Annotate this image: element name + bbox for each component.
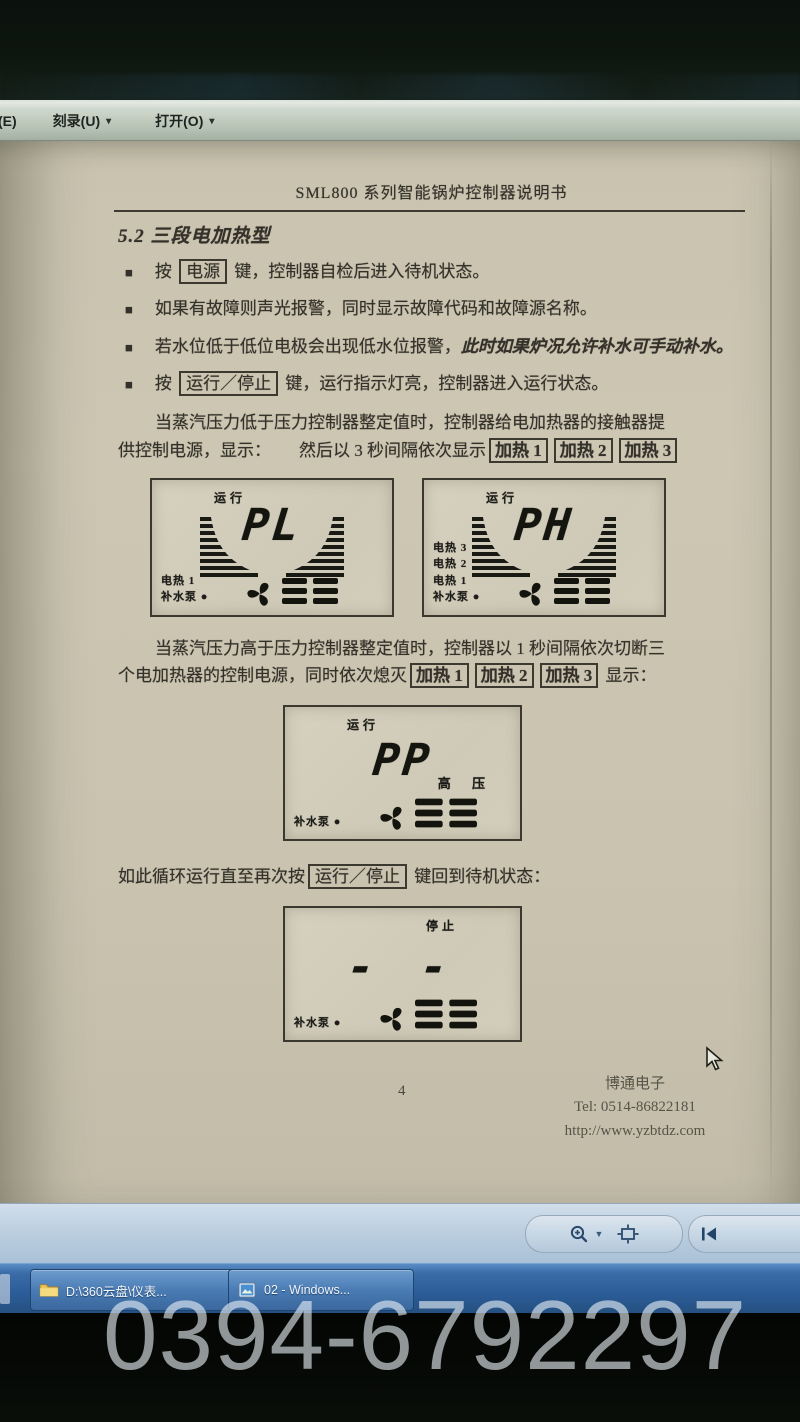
run-stop-key-box: 运行／停止	[179, 371, 278, 396]
viewer-control-bar: ▼	[0, 1203, 800, 1264]
paragraph-line: 当蒸汽压力低于压力控制器整定值时，控制器给电加热器的接触器提	[118, 409, 745, 436]
paragraph-line: 个电加热器的控制电源，同时依次熄灭加热 1加热 2加热 3 显示：	[118, 662, 745, 689]
bullet-square-icon: ■	[125, 302, 133, 317]
paragraph-text: 个电加热器的控制电源，同时依次熄灭	[118, 666, 407, 685]
heater-bars-icon	[415, 798, 477, 828]
paragraph-cycle: 如此循环运行直至再次按运行／停止 键回到待机状态：	[118, 863, 745, 890]
doc-header-title: SML800 系列智能锅炉控制器说明书	[118, 179, 745, 203]
heat3-indicator-box: 加热 3	[540, 663, 599, 688]
heater-bars-icon	[282, 578, 338, 604]
indicator-label: 电热 3	[433, 540, 480, 557]
lcd-panel-center: 停止 - - 补水泵 ●	[283, 906, 745, 1042]
chevron-down-icon[interactable]: ▼	[595, 1229, 604, 1239]
paragraph-line: 供控制电源，显示：然后以 3 秒间隔依次显示加热 1加热 2加热 3	[118, 437, 745, 464]
header-rule	[114, 210, 745, 212]
indicator-label: 电热 2	[433, 556, 480, 573]
lcd-display-pp: 运行 PP 高 压 补水泵 ●	[283, 705, 522, 841]
bullet-text-emphasis: 此时如果炉况允许补水可手动补水。	[461, 337, 733, 356]
fan-icon	[246, 580, 274, 608]
fit-to-window-icon[interactable]	[617, 1224, 639, 1244]
indicator-label: 补水泵 ●	[294, 814, 341, 831]
zoom-controls-group: ▼	[525, 1215, 683, 1253]
lcd-display-pl: 运行 PL 电热 1 补水泵 ●	[150, 478, 394, 617]
lcd-indicator-labels: 电热 1 补水泵 ●	[161, 573, 208, 606]
bullet-square-icon: ■	[125, 265, 133, 280]
lcd-panel-row: 运行 PL 电热 1 补水泵 ●	[150, 478, 745, 617]
indicator-label: 补水泵 ●	[433, 589, 480, 606]
water-level-bars-left-icon	[472, 516, 536, 578]
fan-icon	[379, 1005, 407, 1033]
heater-bars-icon	[415, 999, 477, 1029]
indicator-label: 补水泵 ●	[161, 589, 208, 606]
paragraph-text: 如此循环运行直至再次按	[118, 867, 305, 886]
fan-icon	[379, 804, 407, 832]
paragraph-text: 然后以 3 秒间隔依次显示	[299, 441, 486, 460]
heat1-indicator-box: 加热 1	[410, 663, 469, 688]
high-pressure-label: 高 压	[438, 773, 494, 792]
lcd-indicator-labels: 补水泵 ●	[294, 1015, 341, 1032]
menu-item-label: 刻录(U)	[53, 111, 100, 131]
section-heading: 5.2 三段电加热型	[118, 221, 745, 248]
company-name: 博通电子	[520, 1073, 750, 1096]
page-number: 4	[398, 1083, 406, 1100]
watermark-text: 0394-6792297	[103, 1279, 747, 1392]
viewer-menu-bar: (E) 刻录(U) ▾ 打开(O) ▾	[0, 100, 800, 141]
zoom-magnifier-icon[interactable]	[569, 1224, 589, 1244]
bullet-square-icon: ■	[125, 340, 133, 355]
bullet-run-stop-key: ■按 运行／停止 键，运行指示灯亮，控制器进入运行状态。	[118, 371, 745, 397]
bullet-text: 键，运行指示灯亮，控制器进入运行状态。	[281, 374, 608, 393]
bullet-low-water: ■若水位低于低位电极会出现低水位报警，此时如果炉况允许补水可手动补水。	[118, 334, 745, 360]
heat3-indicator-box: 加热 3	[619, 438, 678, 463]
water-level-bars-right-icon	[280, 516, 344, 578]
mouse-cursor-icon	[704, 1046, 726, 1074]
lcd-panel-center: 运行 PP 高 压 补水泵 ●	[283, 705, 745, 841]
indicator-label: 电热 1	[433, 573, 480, 590]
menu-item-label: (E)	[0, 113, 17, 129]
heater-bars-icon	[554, 578, 610, 604]
paragraph-text: 供控制电源，显示：	[118, 441, 271, 460]
paragraph-high-pressure: 当蒸汽压力高于压力控制器整定值时，控制器以 1 秒间隔依次切断三 个电加热器的控…	[118, 635, 745, 689]
bullet-text: 按	[155, 374, 176, 393]
bullet-square-icon: ■	[125, 377, 133, 392]
monitor-bezel-top	[0, 0, 800, 100]
lcd-status-label: 停止	[426, 917, 458, 934]
run-stop-key-box: 运行／停止	[308, 864, 407, 889]
document-page: SML800 系列智能锅炉控制器说明书 5.2 三段电加热型 ■按 电源 键，控…	[0, 141, 800, 1203]
lcd-value: PL	[149, 500, 394, 551]
lcd-indicator-labels: 电热 3 电热 2 电热 1 补水泵 ●	[433, 540, 480, 606]
menu-item-open[interactable]: 打开(O) ▾	[147, 108, 222, 134]
heat2-indicator-box: 加热 2	[475, 663, 534, 688]
chevron-down-icon: ▾	[209, 116, 214, 127]
paragraph-text: 显示：	[601, 666, 656, 685]
menu-item-email-partial[interactable]: (E)	[0, 110, 25, 132]
paragraph-low-pressure: 当蒸汽压力低于压力控制器整定值时，控制器给电加热器的接触器提 供控制电源，显示：…	[118, 409, 745, 463]
chevron-down-icon: ▾	[106, 116, 111, 127]
folder-icon	[39, 1282, 59, 1298]
heat1-indicator-box: 加热 1	[489, 438, 548, 463]
bullet-text: 若水位低于低位电极会出现低水位报警，	[155, 337, 461, 356]
bullet-text: 按	[155, 262, 176, 281]
company-tel: Tel: 0514-86822181	[520, 1096, 750, 1119]
lcd-indicator-labels: 补水泵 ●	[294, 814, 341, 831]
indicator-label: 补水泵 ●	[294, 1015, 341, 1032]
fan-icon	[518, 580, 546, 608]
menu-item-burn[interactable]: 刻录(U) ▾	[45, 108, 119, 134]
paragraph-text: 键回到待机状态：	[410, 867, 550, 886]
company-footer: 博通电子 Tel: 0514-86822181 http://www.yzbtd…	[520, 1073, 750, 1143]
heat2-indicator-box: 加热 2	[554, 438, 613, 463]
taskbar-edge-icon[interactable]	[0, 1274, 10, 1304]
paragraph-line: 当蒸汽压力高于压力控制器整定值时，控制器以 1 秒间隔依次切断三	[118, 635, 745, 662]
bullet-fault-alarm: ■如果有故障则声光报警，同时显示故障代码和故障源名称。	[118, 296, 745, 322]
previous-image-icon[interactable]	[699, 1225, 719, 1243]
bullet-text: 键，控制器自检后进入待机状态。	[230, 262, 489, 281]
nav-controls-group	[688, 1215, 800, 1253]
bullet-text: 如果有故障则声光报警，同时显示故障代码和故障源名称。	[155, 299, 597, 318]
power-key-box: 电源	[179, 259, 227, 284]
water-level-bars-right-icon	[552, 516, 616, 578]
bullet-power-key: ■按 电源 键，控制器自检后进入待机状态。	[118, 259, 745, 285]
menu-item-label: 打开(O)	[155, 111, 203, 131]
monitor-photo: (E) 刻录(U) ▾ 打开(O) ▾ SML800 系列智能锅炉控制器说明书 …	[0, 0, 800, 1422]
water-level-bars-left-icon	[200, 516, 264, 578]
lcd-display-standby: 停止 - - 补水泵 ●	[283, 906, 522, 1042]
lcd-status-label: 运行	[347, 716, 379, 733]
indicator-label: 电热 1	[161, 573, 208, 590]
lcd-display-ph: 运行 PH 电热 3 电热 2 电热 1 补水泵 ●	[422, 478, 666, 617]
lcd-value: - -	[282, 942, 522, 993]
company-url: http://www.yzbtdz.com	[520, 1120, 750, 1143]
